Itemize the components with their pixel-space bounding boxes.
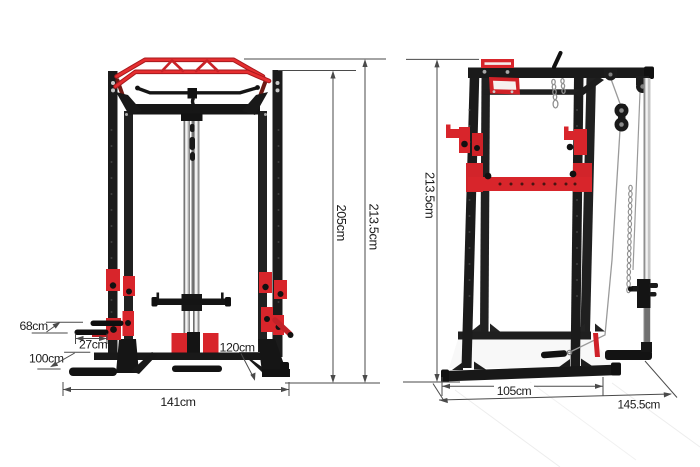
svg-text:141cm: 141cm xyxy=(160,395,195,409)
svg-text:213.5cm: 213.5cm xyxy=(367,204,382,250)
svg-text:205cm: 205cm xyxy=(334,205,349,241)
svg-text:27cm: 27cm xyxy=(79,338,107,352)
svg-text:100cm: 100cm xyxy=(29,351,64,365)
svg-text:68cm: 68cm xyxy=(20,319,48,333)
svg-text:105cm: 105cm xyxy=(497,384,532,398)
svg-text:145.5cm: 145.5cm xyxy=(618,397,661,411)
svg-text:213.5cm: 213.5cm xyxy=(423,172,438,218)
